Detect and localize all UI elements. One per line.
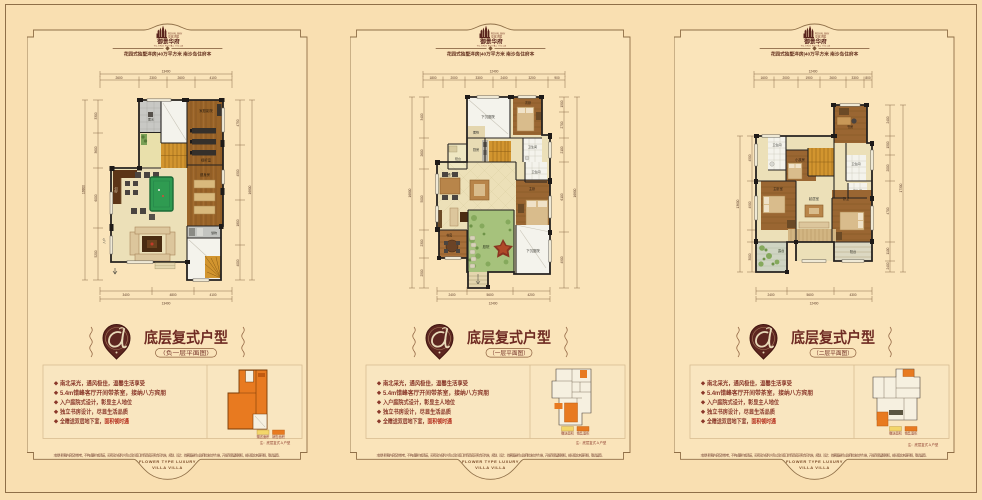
svg-text:入户: 入户 — [101, 238, 106, 244]
svg-text:5000: 5000 — [420, 195, 424, 202]
svg-text:4100: 4100 — [209, 76, 216, 80]
svg-text:阳台: 阳台 — [850, 249, 856, 254]
svg-text:5600: 5600 — [486, 293, 493, 297]
svg-text:下沉庭院: 下沉庭院 — [526, 248, 540, 253]
svg-text:4700: 4700 — [886, 207, 890, 214]
svg-text:3300: 3300 — [851, 76, 858, 80]
svg-text:16800: 16800 — [248, 185, 252, 194]
svg-text:4750: 4750 — [236, 119, 240, 126]
svg-text:3200: 3200 — [528, 76, 535, 80]
svg-text:2600: 2600 — [177, 76, 184, 80]
svg-text:16800: 16800 — [82, 185, 86, 194]
svg-text:1900: 1900 — [805, 76, 812, 80]
svg-text:储物: 储物 — [211, 230, 217, 235]
svg-text:2400: 2400 — [448, 293, 455, 297]
svg-text:1800: 1800 — [236, 219, 240, 226]
svg-text:1500: 1500 — [886, 141, 890, 148]
svg-text:2600: 2600 — [420, 149, 424, 156]
svg-text:2400: 2400 — [886, 116, 890, 123]
svg-text:1100: 1100 — [886, 247, 890, 254]
svg-text:卫生间: 卫生间 — [528, 144, 537, 149]
svg-text:2100: 2100 — [560, 146, 564, 153]
svg-text:注：底层复式Ａ户型: 注：底层复式Ａ户型 — [908, 442, 939, 447]
svg-text:阳台: 阳台 — [455, 156, 461, 161]
svg-text:6000: 6000 — [94, 194, 98, 201]
svg-text:5200: 5200 — [94, 250, 98, 257]
svg-text:2300: 2300 — [149, 76, 156, 80]
svg-text:（负一层平面图）: （负一层平面图） — [159, 349, 213, 357]
svg-text:4300: 4300 — [849, 293, 856, 297]
svg-text:2600: 2600 — [829, 76, 836, 80]
svg-text:13400: 13400 — [162, 70, 171, 74]
svg-text:17300: 17300 — [899, 183, 903, 192]
svg-text:4500: 4500 — [236, 169, 240, 176]
svg-text:2400: 2400 — [886, 262, 890, 269]
svg-text:2400: 2400 — [767, 293, 774, 297]
svg-text:3400: 3400 — [122, 293, 129, 297]
svg-text:书房: 书房 — [446, 233, 452, 238]
svg-text:3300: 3300 — [94, 112, 98, 119]
svg-text:2300: 2300 — [420, 239, 424, 246]
svg-text:5600: 5600 — [806, 293, 813, 297]
svg-text:卫生间: 卫生间 — [772, 142, 781, 147]
svg-text:2400: 2400 — [500, 76, 507, 80]
svg-text:露台: 露台 — [778, 248, 784, 253]
svg-text:2000: 2000 — [782, 76, 789, 80]
svg-text:3000: 3000 — [748, 253, 752, 260]
svg-text:健身房: 健身房 — [200, 172, 211, 177]
svg-text:12400: 12400 — [490, 70, 499, 74]
svg-text:16800: 16800 — [408, 188, 412, 197]
svg-text:2000: 2000 — [450, 76, 457, 80]
svg-text:4900: 4900 — [748, 201, 752, 208]
svg-text:吧台: 吧台 — [113, 187, 118, 193]
svg-text:12400: 12400 — [810, 302, 819, 306]
svg-text:家庭影院: 家庭影院 — [199, 108, 213, 113]
svg-text:卫生间: 卫生间 — [531, 169, 540, 174]
svg-text:4100: 4100 — [209, 293, 216, 297]
svg-text:4000: 4000 — [236, 259, 240, 266]
svg-text:4200: 4200 — [527, 293, 534, 297]
svg-text:蓄物: 蓄物 — [473, 130, 479, 135]
svg-text:起居室: 起居室 — [809, 196, 820, 201]
svg-text:（二层平面图）: （二层平面图） — [813, 349, 853, 357]
svg-text:12400: 12400 — [809, 70, 818, 74]
svg-text:4800: 4800 — [169, 293, 176, 297]
svg-text:厨房: 厨房 — [473, 147, 479, 152]
svg-text:6100: 6100 — [560, 193, 564, 200]
svg-text:注：底层复式Ａ户型: 注：底层复式Ａ户型 — [576, 440, 607, 445]
svg-text:4500: 4500 — [748, 154, 752, 161]
svg-text:蓄水: 蓄水 — [148, 117, 154, 122]
svg-text:视听室: 视听室 — [201, 158, 212, 163]
svg-text:13600: 13600 — [736, 199, 740, 208]
svg-text:主卧: 主卧 — [529, 186, 536, 191]
svg-text:3600: 3600 — [94, 146, 98, 153]
svg-text:2600: 2600 — [115, 76, 122, 80]
svg-text:1800: 1800 — [429, 76, 436, 80]
svg-text:16800: 16800 — [573, 188, 577, 197]
svg-text:卫生间: 卫生间 — [851, 161, 860, 166]
svg-text:下沉庭院: 下沉庭院 — [481, 114, 495, 119]
svg-text:2000: 2000 — [886, 164, 890, 171]
svg-text:注：底层复式Ａ户型: 注：底层复式Ａ户型 — [260, 440, 291, 445]
svg-text:庭院: 庭院 — [483, 244, 490, 249]
svg-text:1500: 1500 — [560, 100, 564, 107]
svg-text:1600: 1600 — [760, 76, 767, 80]
svg-text:2700: 2700 — [560, 121, 564, 128]
svg-text:900: 900 — [554, 76, 560, 80]
svg-text:次卧: 次卧 — [525, 100, 532, 105]
svg-text:小孩房: 小孩房 — [795, 157, 805, 162]
svg-text:（一层平面图）: （一层平面图） — [489, 349, 529, 357]
svg-text:3300: 3300 — [475, 76, 482, 80]
svg-text:主卧室: 主卧室 — [773, 186, 783, 191]
svg-text:2500: 2500 — [420, 269, 424, 276]
svg-text:12400: 12400 — [489, 302, 498, 306]
svg-text:800: 800 — [865, 76, 871, 80]
svg-text:3400: 3400 — [420, 113, 424, 120]
svg-text:13400: 13400 — [162, 302, 171, 306]
svg-text:4900: 4900 — [560, 256, 564, 263]
